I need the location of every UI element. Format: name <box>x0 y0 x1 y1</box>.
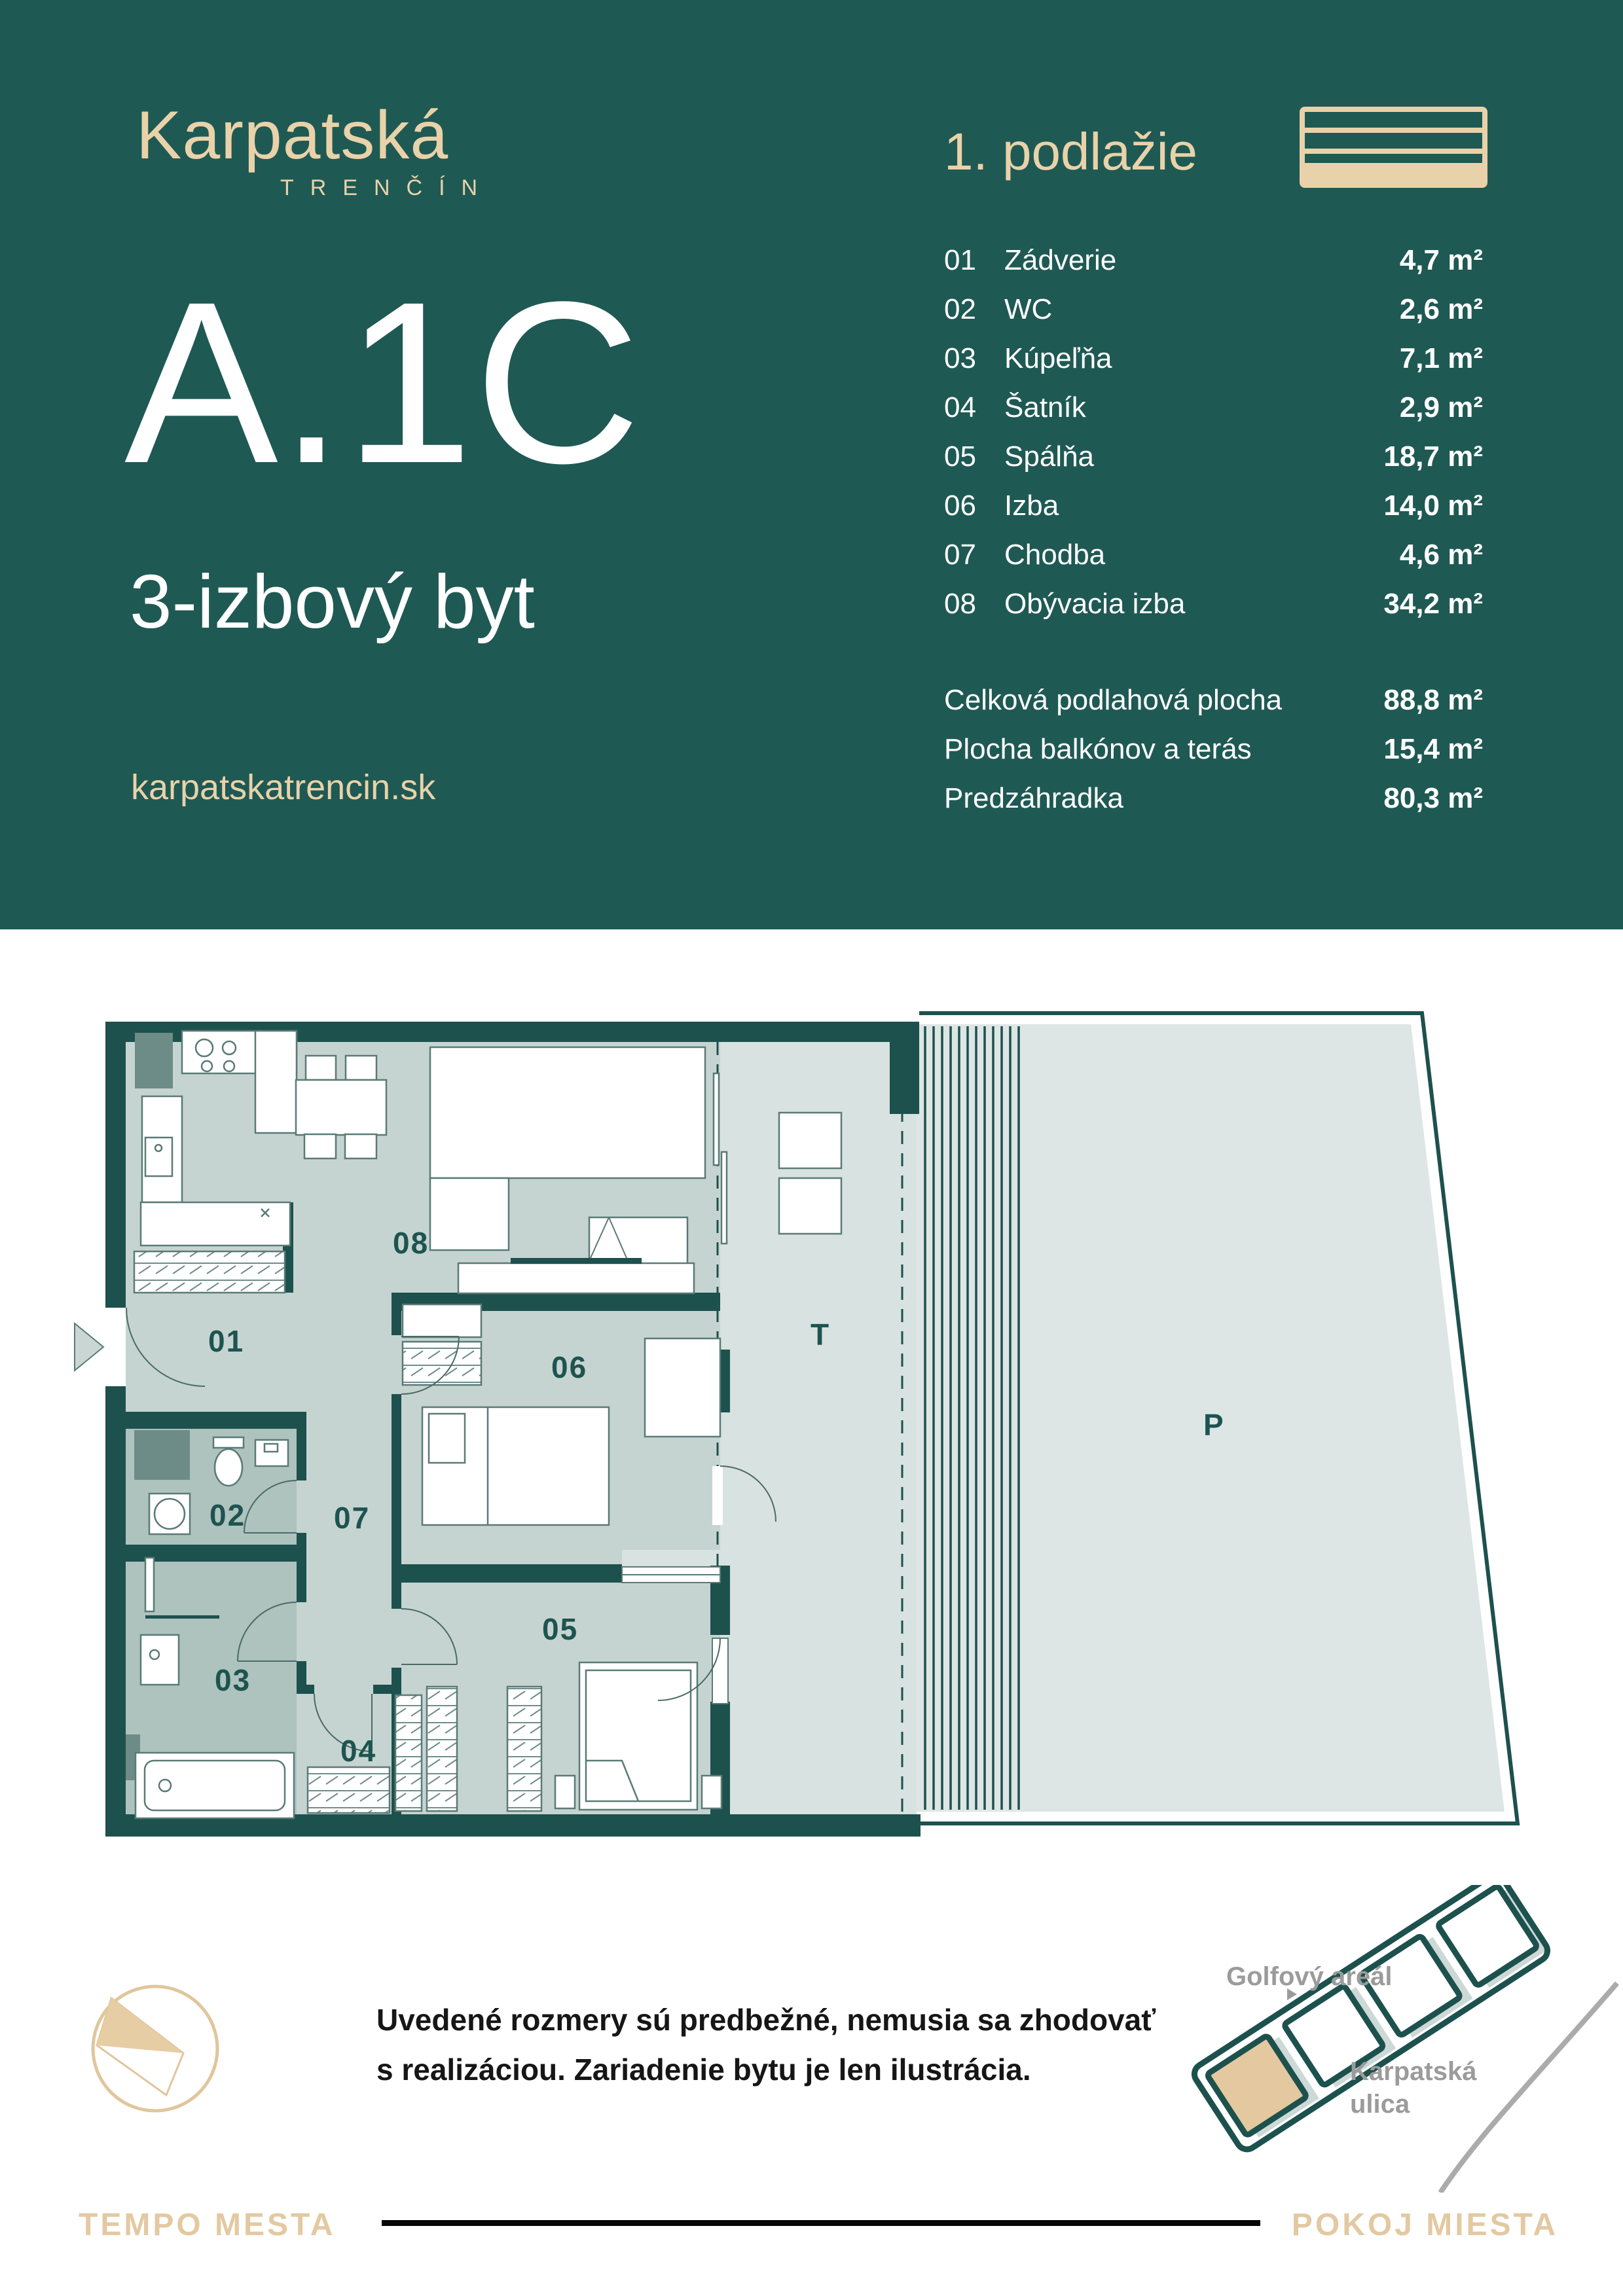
room-number: 01 <box>944 244 1004 277</box>
tv <box>511 1258 642 1264</box>
building-floor-icon <box>1300 107 1487 188</box>
plan-room-label-02: 02 <box>210 1498 246 1533</box>
plan-room-label-03: 03 <box>215 1662 251 1698</box>
room-row: 07Chodba4,6 m² <box>944 530 1483 579</box>
shaft-kitchen <box>135 1033 173 1088</box>
total-row: Plocha balkónov a terás15,4 m² <box>944 725 1483 774</box>
plan-room-label-08: 08 <box>393 1225 429 1261</box>
unit-code: A.1C <box>124 267 642 497</box>
plan-room-label-P: P <box>1203 1407 1225 1443</box>
room-area: 14,0 m² <box>1383 490 1483 522</box>
room-number: 02 <box>944 293 1004 326</box>
desk-06 <box>645 1338 720 1437</box>
room-number: 08 <box>944 588 1004 620</box>
wardrobe-06-hatch <box>403 1342 481 1385</box>
room-number: 04 <box>944 391 1004 424</box>
area-totals: Celková podlahová plocha88,8 m²Plocha ba… <box>944 675 1483 823</box>
wardrobe-05 <box>507 1687 541 1811</box>
sofa-chaise <box>430 1178 509 1250</box>
room-row: 01Zádverie4,7 m² <box>944 236 1483 285</box>
dining-table <box>296 1080 386 1135</box>
total-row: Predzáhradka80,3 m² <box>944 774 1483 823</box>
room-name: Zádverie <box>1004 244 1400 277</box>
total-row: Celková podlahová plocha88,8 m² <box>944 675 1483 725</box>
room-name: Chodba <box>1004 539 1400 571</box>
room-area: 2,6 m² <box>1400 293 1483 326</box>
room-name: Spálňa <box>1004 440 1383 473</box>
plan-room-label-01: 01 <box>208 1323 244 1359</box>
room-number: 07 <box>944 539 1004 571</box>
room-area: 2,9 m² <box>1400 391 1483 424</box>
vanity <box>141 1635 179 1685</box>
wardrobe-entry <box>134 1251 285 1293</box>
sofa <box>430 1047 705 1178</box>
room-area: 7,1 m² <box>1400 342 1483 375</box>
room-number: 03 <box>944 342 1004 375</box>
room-number: 05 <box>944 440 1004 473</box>
kitchen-sink <box>145 1138 172 1176</box>
website-link[interactable]: karpatskatrencin.sk <box>131 767 435 808</box>
total-label: Celková podlahová plocha <box>944 684 1383 717</box>
room-area: 34,2 m² <box>1383 588 1483 620</box>
room-row: 04Šatník2,9 m² <box>944 383 1483 432</box>
toilet <box>215 1449 242 1486</box>
pillow <box>429 1414 465 1463</box>
compass-icon <box>73 1967 237 2130</box>
chair <box>306 1056 336 1080</box>
brand-logo: Karpatská <box>136 97 448 175</box>
chair <box>304 1134 336 1158</box>
room-area: 4,6 m² <box>1400 539 1483 571</box>
room-area: 18,7 m² <box>1383 440 1483 473</box>
room-name: Kúpeľňa <box>1004 342 1400 375</box>
total-label: Plocha balkónov a terás <box>944 733 1383 766</box>
header-panel: Karpatská TRENČÍN A.1C 3-izbový byt karp… <box>0 0 1623 929</box>
room-row: 05Spálňa18,7 m² <box>944 432 1483 481</box>
plan-room-label-04: 04 <box>340 1733 376 1768</box>
plan-room-label-T: T <box>811 1317 830 1352</box>
terrace-table <box>779 1113 841 1168</box>
room-area: 4,7 m² <box>1400 244 1483 277</box>
disclaimer-text: Uvedené rozmery sú predbežné, nemusia sa… <box>376 1995 1156 2094</box>
tv-sideboard <box>458 1263 694 1293</box>
brand-city: TRENČÍN <box>280 175 494 201</box>
unit-type: 3-izbový byt <box>130 558 535 645</box>
wardrobe-06 <box>403 1304 481 1337</box>
room-name: Izba <box>1004 490 1383 522</box>
bed-05 <box>579 1662 697 1810</box>
total-value: 80,3 m² <box>1383 782 1483 815</box>
plan-room-label-06: 06 <box>551 1350 587 1385</box>
room-name: Šatník <box>1004 391 1400 424</box>
street-label: Karpatská ulica <box>1350 2055 1476 2121</box>
room-list: 01Zádverie4,7 m²02WC2,6 m²03Kúpeľňa7,1 m… <box>944 236 1483 628</box>
terrace-chair <box>779 1178 841 1234</box>
mirror <box>145 1558 154 1611</box>
room-row: 03Kúpeľňa7,1 m² <box>944 334 1483 383</box>
sliding-door <box>714 1073 719 1165</box>
chair <box>345 1134 376 1158</box>
nightstand <box>702 1776 721 1808</box>
kitchen-island <box>141 1202 290 1246</box>
total-value: 88,8 m² <box>1383 684 1483 717</box>
total-value: 15,4 m² <box>1383 733 1483 766</box>
room-row: 02WC2,6 m² <box>944 285 1483 334</box>
site-map <box>1165 1885 1623 2193</box>
toilet-tank <box>213 1437 244 1448</box>
room-number: 06 <box>944 490 1004 522</box>
room-row: 08Obývacia izba34,2 m² <box>944 579 1483 628</box>
chair <box>346 1056 376 1080</box>
nightstand <box>555 1776 575 1808</box>
footer-right: POKOJ MIESTA <box>1292 2207 1558 2243</box>
plan-room-label-05: 05 <box>542 1611 578 1647</box>
wardrobe-05 <box>427 1687 457 1811</box>
closet-04 <box>308 1767 390 1813</box>
room-name: Obývacia izba <box>1004 588 1383 620</box>
washing-machine <box>149 1494 190 1534</box>
sliding-door <box>721 1152 727 1244</box>
golf-area-label: Golfový areál <box>1226 1960 1392 1993</box>
footer-left: TEMPO MESTA <box>79 2207 335 2243</box>
plan-room-label-07: 07 <box>334 1500 370 1535</box>
total-label: Predzáhradka <box>944 782 1383 815</box>
room-row: 06Izba14,0 m² <box>944 481 1483 530</box>
floor-label: 1. podlažie <box>944 122 1197 182</box>
wardrobe-05 <box>395 1695 422 1811</box>
entrance-arrow-icon <box>75 1323 103 1371</box>
flat-datasheet-page: Karpatská TRENČÍN A.1C 3-izbový byt karp… <box>0 0 1623 2296</box>
footer-divider <box>382 2220 1260 2226</box>
kitchen-tall-unit <box>255 1031 297 1133</box>
floor-plan <box>0 929 1623 1898</box>
shaft-wc <box>134 1430 190 1480</box>
room-name: WC <box>1004 293 1400 326</box>
